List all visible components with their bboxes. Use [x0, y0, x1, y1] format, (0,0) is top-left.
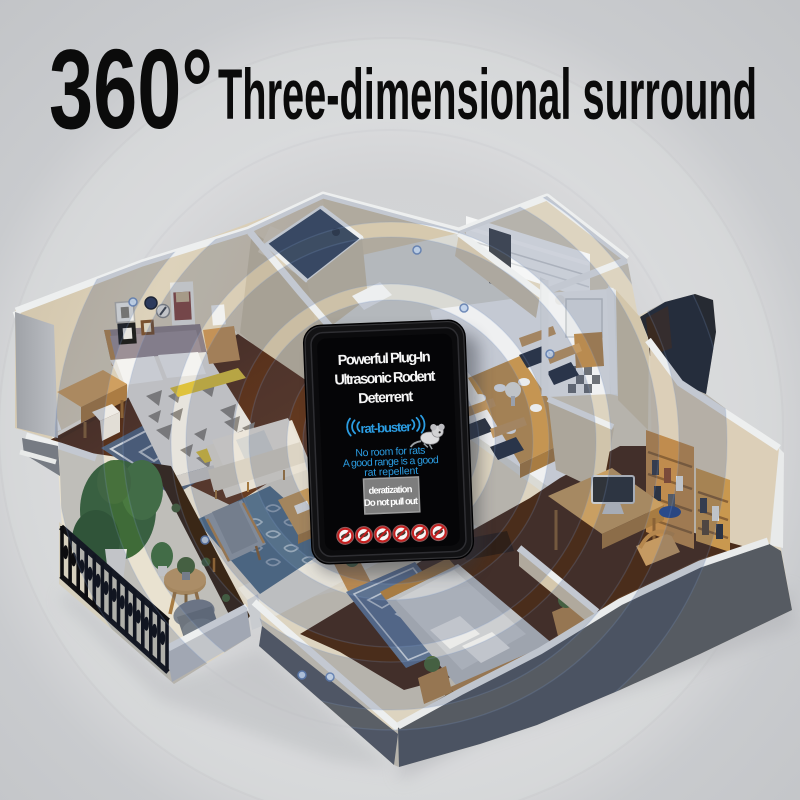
- svg-text:Do not pull out: Do not pull out: [364, 496, 419, 509]
- svg-text:Three-dimensional surround: Three-dimensional surround: [218, 56, 757, 135]
- svg-text:rat-buster: rat-buster: [360, 419, 412, 436]
- svg-text:deratization: deratization: [368, 484, 413, 497]
- svg-text:Deterrent: Deterrent: [358, 389, 414, 407]
- svg-text:360°: 360°: [49, 26, 213, 152]
